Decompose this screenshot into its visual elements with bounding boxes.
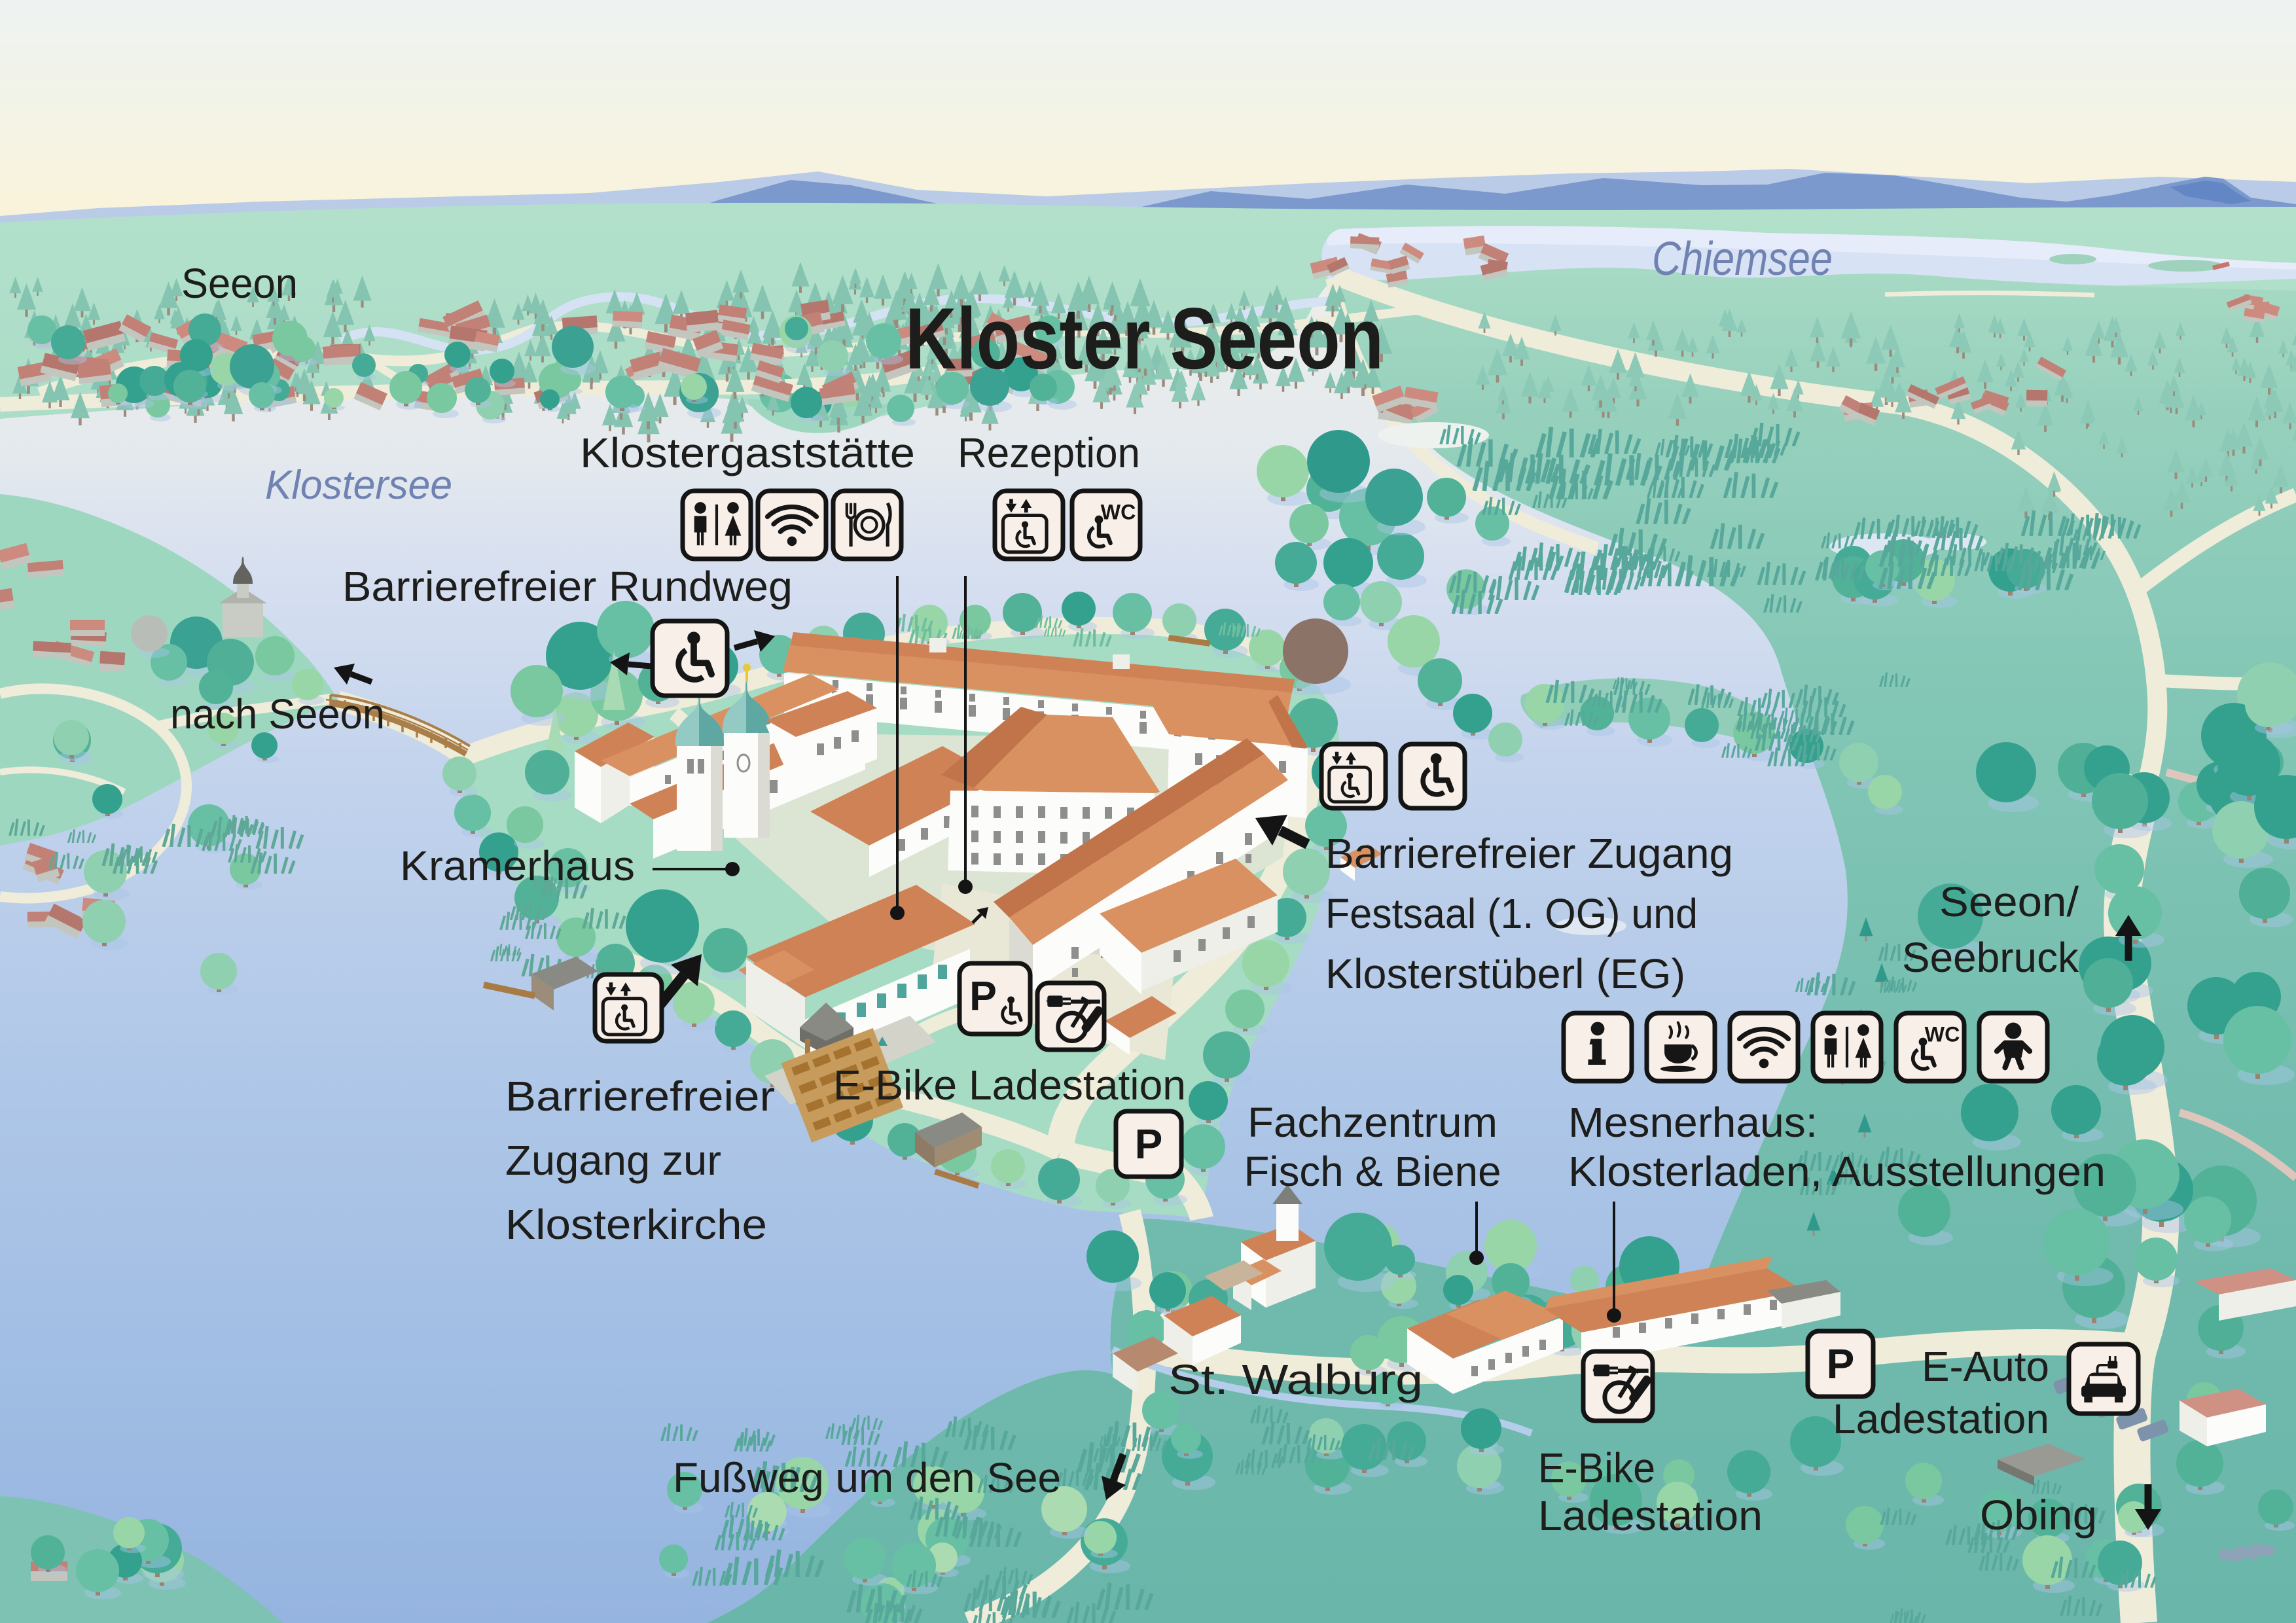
svg-text:Zugang zur: Zugang zur: [505, 1137, 721, 1184]
svg-text:Fußweg um den See: Fußweg um den See: [673, 1454, 1061, 1501]
svg-text:Kloster Seeon: Kloster Seeon: [905, 291, 1384, 387]
svg-text:Seeon: Seeon: [181, 260, 298, 307]
svg-text:Ladestation: Ladestation: [1833, 1395, 2049, 1442]
svg-text:Chiemsee: Chiemsee: [1652, 233, 1833, 285]
svg-text:Klosterstüberl (EG): Klosterstüberl (EG): [1325, 950, 1685, 997]
svg-text:Festsaal (1. OG) und: Festsaal (1. OG) und: [1325, 890, 1698, 937]
svg-text:nach Seeon: nach Seeon: [170, 690, 385, 738]
svg-text:Rezeption: Rezeption: [958, 429, 1140, 476]
svg-text:Seeon/: Seeon/: [1939, 878, 2079, 925]
svg-text:Obing: Obing: [1980, 1491, 2097, 1539]
svg-text:Klosterladen, Ausstellungen: Klosterladen, Ausstellungen: [1568, 1148, 2106, 1195]
svg-text:Fachzentrum: Fachzentrum: [1247, 1099, 1498, 1146]
svg-text:Fisch & Biene: Fisch & Biene: [1244, 1148, 1501, 1195]
svg-text:Barrierefreier Zugang: Barrierefreier Zugang: [1325, 830, 1733, 877]
svg-text:St. Walburg: St. Walburg: [1168, 1356, 1423, 1403]
svg-text:Ladestation: Ladestation: [1538, 1492, 1763, 1539]
svg-text:Seebruck: Seebruck: [1902, 934, 2079, 981]
svg-text:E-Bike: E-Bike: [1538, 1444, 1655, 1491]
svg-text:Barrierefreier Rundweg: Barrierefreier Rundweg: [342, 563, 793, 610]
svg-text:Kramerhaus: Kramerhaus: [400, 842, 635, 889]
svg-text:E-Bike Ladestation: E-Bike Ladestation: [833, 1061, 1186, 1109]
svg-text:Mesnerhaus:: Mesnerhaus:: [1568, 1099, 1818, 1146]
svg-text:Klostergaststätte: Klostergaststätte: [580, 429, 915, 476]
svg-text:Klosterkirche: Klosterkirche: [505, 1201, 767, 1248]
svg-text:Barrierefreier: Barrierefreier: [505, 1073, 775, 1120]
svg-text:Klostersee: Klostersee: [265, 463, 452, 508]
svg-text:E-Auto: E-Auto: [1922, 1343, 2049, 1390]
